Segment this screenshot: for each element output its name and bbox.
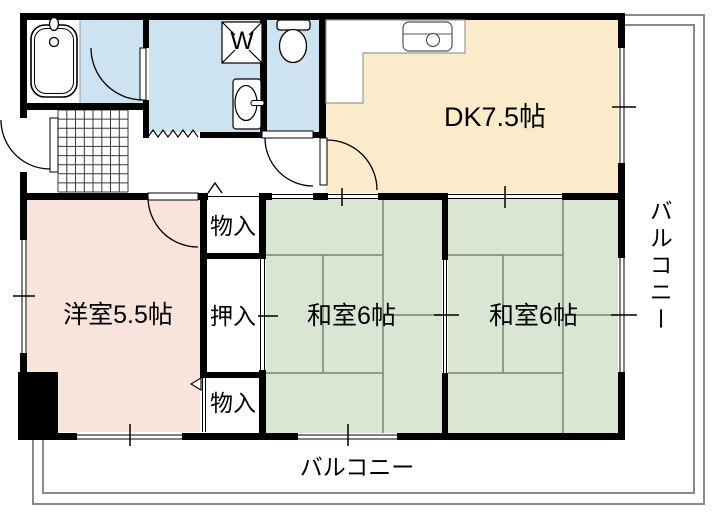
- western-room-label: 洋室5.5帖: [33, 302, 203, 330]
- wall-hall-2: [198, 193, 208, 200]
- wall-dk-jp2-corner: [562, 193, 625, 200]
- wall-hall-1: [20, 193, 148, 200]
- wall-between-jp-rooms-bottom: [442, 373, 448, 433]
- toilet-door-arc: [265, 138, 313, 186]
- dk-door-leaf: [320, 138, 327, 185]
- wall-right-upper: [618, 13, 625, 48]
- washbasin-icon: [233, 79, 264, 129]
- bathroom-door-leaf: [140, 48, 146, 100]
- wall-washroom-divider-top: [143, 13, 149, 48]
- wall-hall-4: [313, 193, 328, 200]
- japanese-room-2-label: 和室6帖: [471, 303, 596, 331]
- wall-washroom-divider-bottom: [143, 100, 149, 138]
- genkan-tile-grid: [58, 110, 128, 192]
- japanese-room-1-label: 和室6帖: [289, 303, 414, 331]
- corner-pillar: [18, 372, 58, 440]
- balcony-bottom-label: バルコニー: [282, 455, 432, 480]
- fusuma-between-jp-rooms: [444, 260, 447, 373]
- fusuma-dk-jp1: [328, 195, 378, 199]
- entrance-door-arc: [1, 120, 50, 169]
- wall-bath-bottom: [20, 103, 148, 110]
- wall-wet-bottom: [200, 132, 262, 138]
- wall-bottom-1: [57, 433, 77, 440]
- fusuma-hall-jp1: [272, 195, 313, 199]
- wall-left-upper: [20, 13, 27, 118]
- wall-bottom-3: [397, 433, 625, 440]
- wall-between-jp-rooms-top: [442, 199, 448, 260]
- toilet-door-leaf: [262, 131, 313, 138]
- entrance-door-leaf: [50, 118, 58, 172]
- storage-bottom-label: 物入: [203, 391, 263, 416]
- folding-door-caret-mark: [208, 183, 222, 193]
- wall-dk-jp-divider: [378, 193, 448, 200]
- wall-storage-divider-1: [200, 253, 266, 259]
- dk-room-label: DK7.5帖: [421, 103, 569, 133]
- wall-hall-3: [259, 193, 272, 200]
- wall-right-lower: [618, 372, 625, 440]
- closet-label: 押入: [203, 304, 263, 329]
- balcony-right-label: バルコニー: [646, 186, 671, 346]
- washer-pan-label: W: [224, 28, 260, 56]
- floorplan: DK7.5帖 洋室5.5帖 和室6帖 和室6帖 物入 押入 物入 W バルコニー…: [0, 0, 721, 519]
- floorplan-drawing: [0, 0, 721, 519]
- wall-left-mid: [20, 172, 27, 240]
- wall-bottom-2: [182, 433, 298, 440]
- window-dk-right: [620, 48, 624, 163]
- wall-storage-divider-2: [200, 372, 266, 378]
- bathtub-icon: [31, 18, 77, 98]
- wall-right-mid: [618, 163, 625, 258]
- wall-dk-left: [319, 13, 326, 138]
- western-room-door-leaf: [148, 193, 198, 200]
- washroom-floor: [80, 20, 143, 103]
- kitchen-sink-icon: [403, 22, 452, 51]
- storage-top-label: 物入: [203, 214, 263, 239]
